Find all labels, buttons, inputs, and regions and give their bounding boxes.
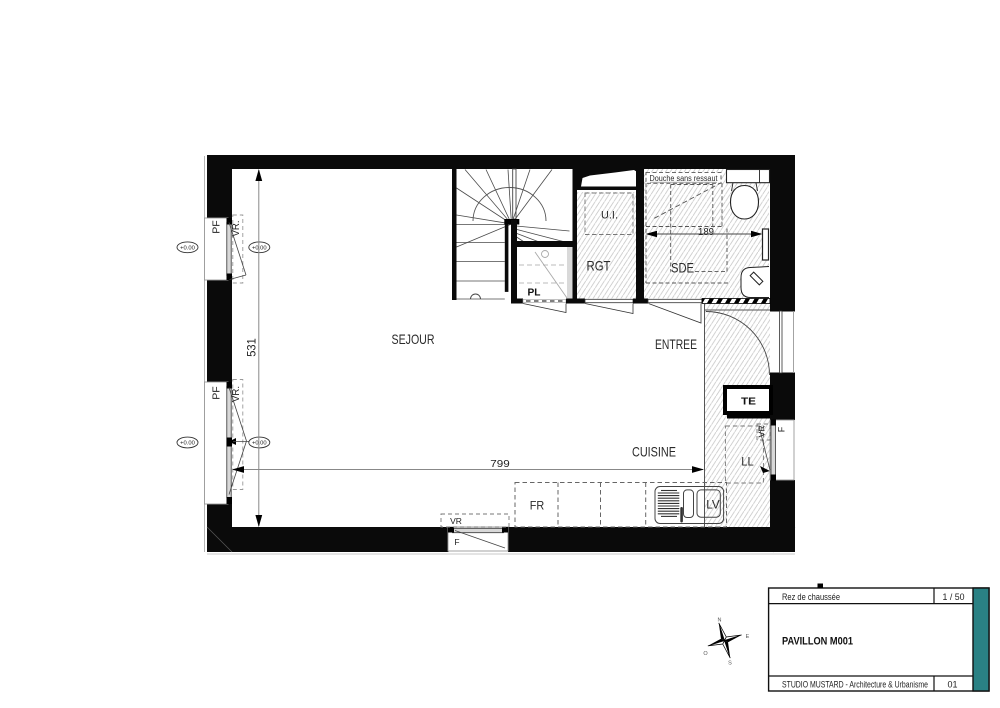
- svg-text:N: N: [718, 618, 722, 624]
- svg-text:F: F: [454, 537, 459, 547]
- svg-text:531: 531: [247, 338, 259, 357]
- svg-text:VR: VR: [450, 516, 462, 526]
- svg-text:PL: PL: [528, 287, 542, 299]
- svg-text:PAVILLON M001: PAVILLON M001: [782, 636, 853, 648]
- svg-text:TE: TE: [741, 396, 756, 408]
- svg-text:1 / 50: 1 / 50: [943, 592, 965, 602]
- svg-text:+0.00: +0.00: [180, 441, 195, 447]
- svg-text:189: 189: [698, 227, 714, 238]
- svg-text:+0.00: +0.00: [180, 245, 195, 251]
- svg-text:STUDIO MUSTARD - Architecture: STUDIO MUSTARD - Architecture & Urbanism…: [782, 679, 928, 689]
- svg-text:O: O: [703, 651, 708, 657]
- svg-text:F: F: [777, 426, 787, 432]
- svg-text:PF: PF: [212, 220, 223, 234]
- svg-text:ENTREE: ENTREE: [655, 336, 697, 352]
- svg-text:CUISINE: CUISINE: [632, 444, 676, 460]
- svg-text:E: E: [746, 634, 750, 640]
- svg-text:LL: LL: [741, 457, 754, 469]
- svg-text:LV: LV: [706, 500, 720, 512]
- svg-text:S: S: [728, 661, 732, 667]
- svg-text:PF: PF: [212, 386, 223, 400]
- svg-text:Rez de chaussée: Rez de chaussée: [782, 592, 840, 602]
- svg-text:U.I.: U.I.: [601, 210, 618, 222]
- svg-text:SEJOUR: SEJOUR: [392, 331, 435, 347]
- svg-text:FR: FR: [530, 501, 545, 513]
- svg-text:799: 799: [490, 458, 510, 470]
- svg-text:RGT: RGT: [587, 258, 611, 274]
- svg-text:01: 01: [947, 679, 957, 689]
- svg-text:SDE: SDE: [671, 259, 694, 275]
- svg-text:Douche sans ressaut: Douche sans ressaut: [650, 174, 719, 183]
